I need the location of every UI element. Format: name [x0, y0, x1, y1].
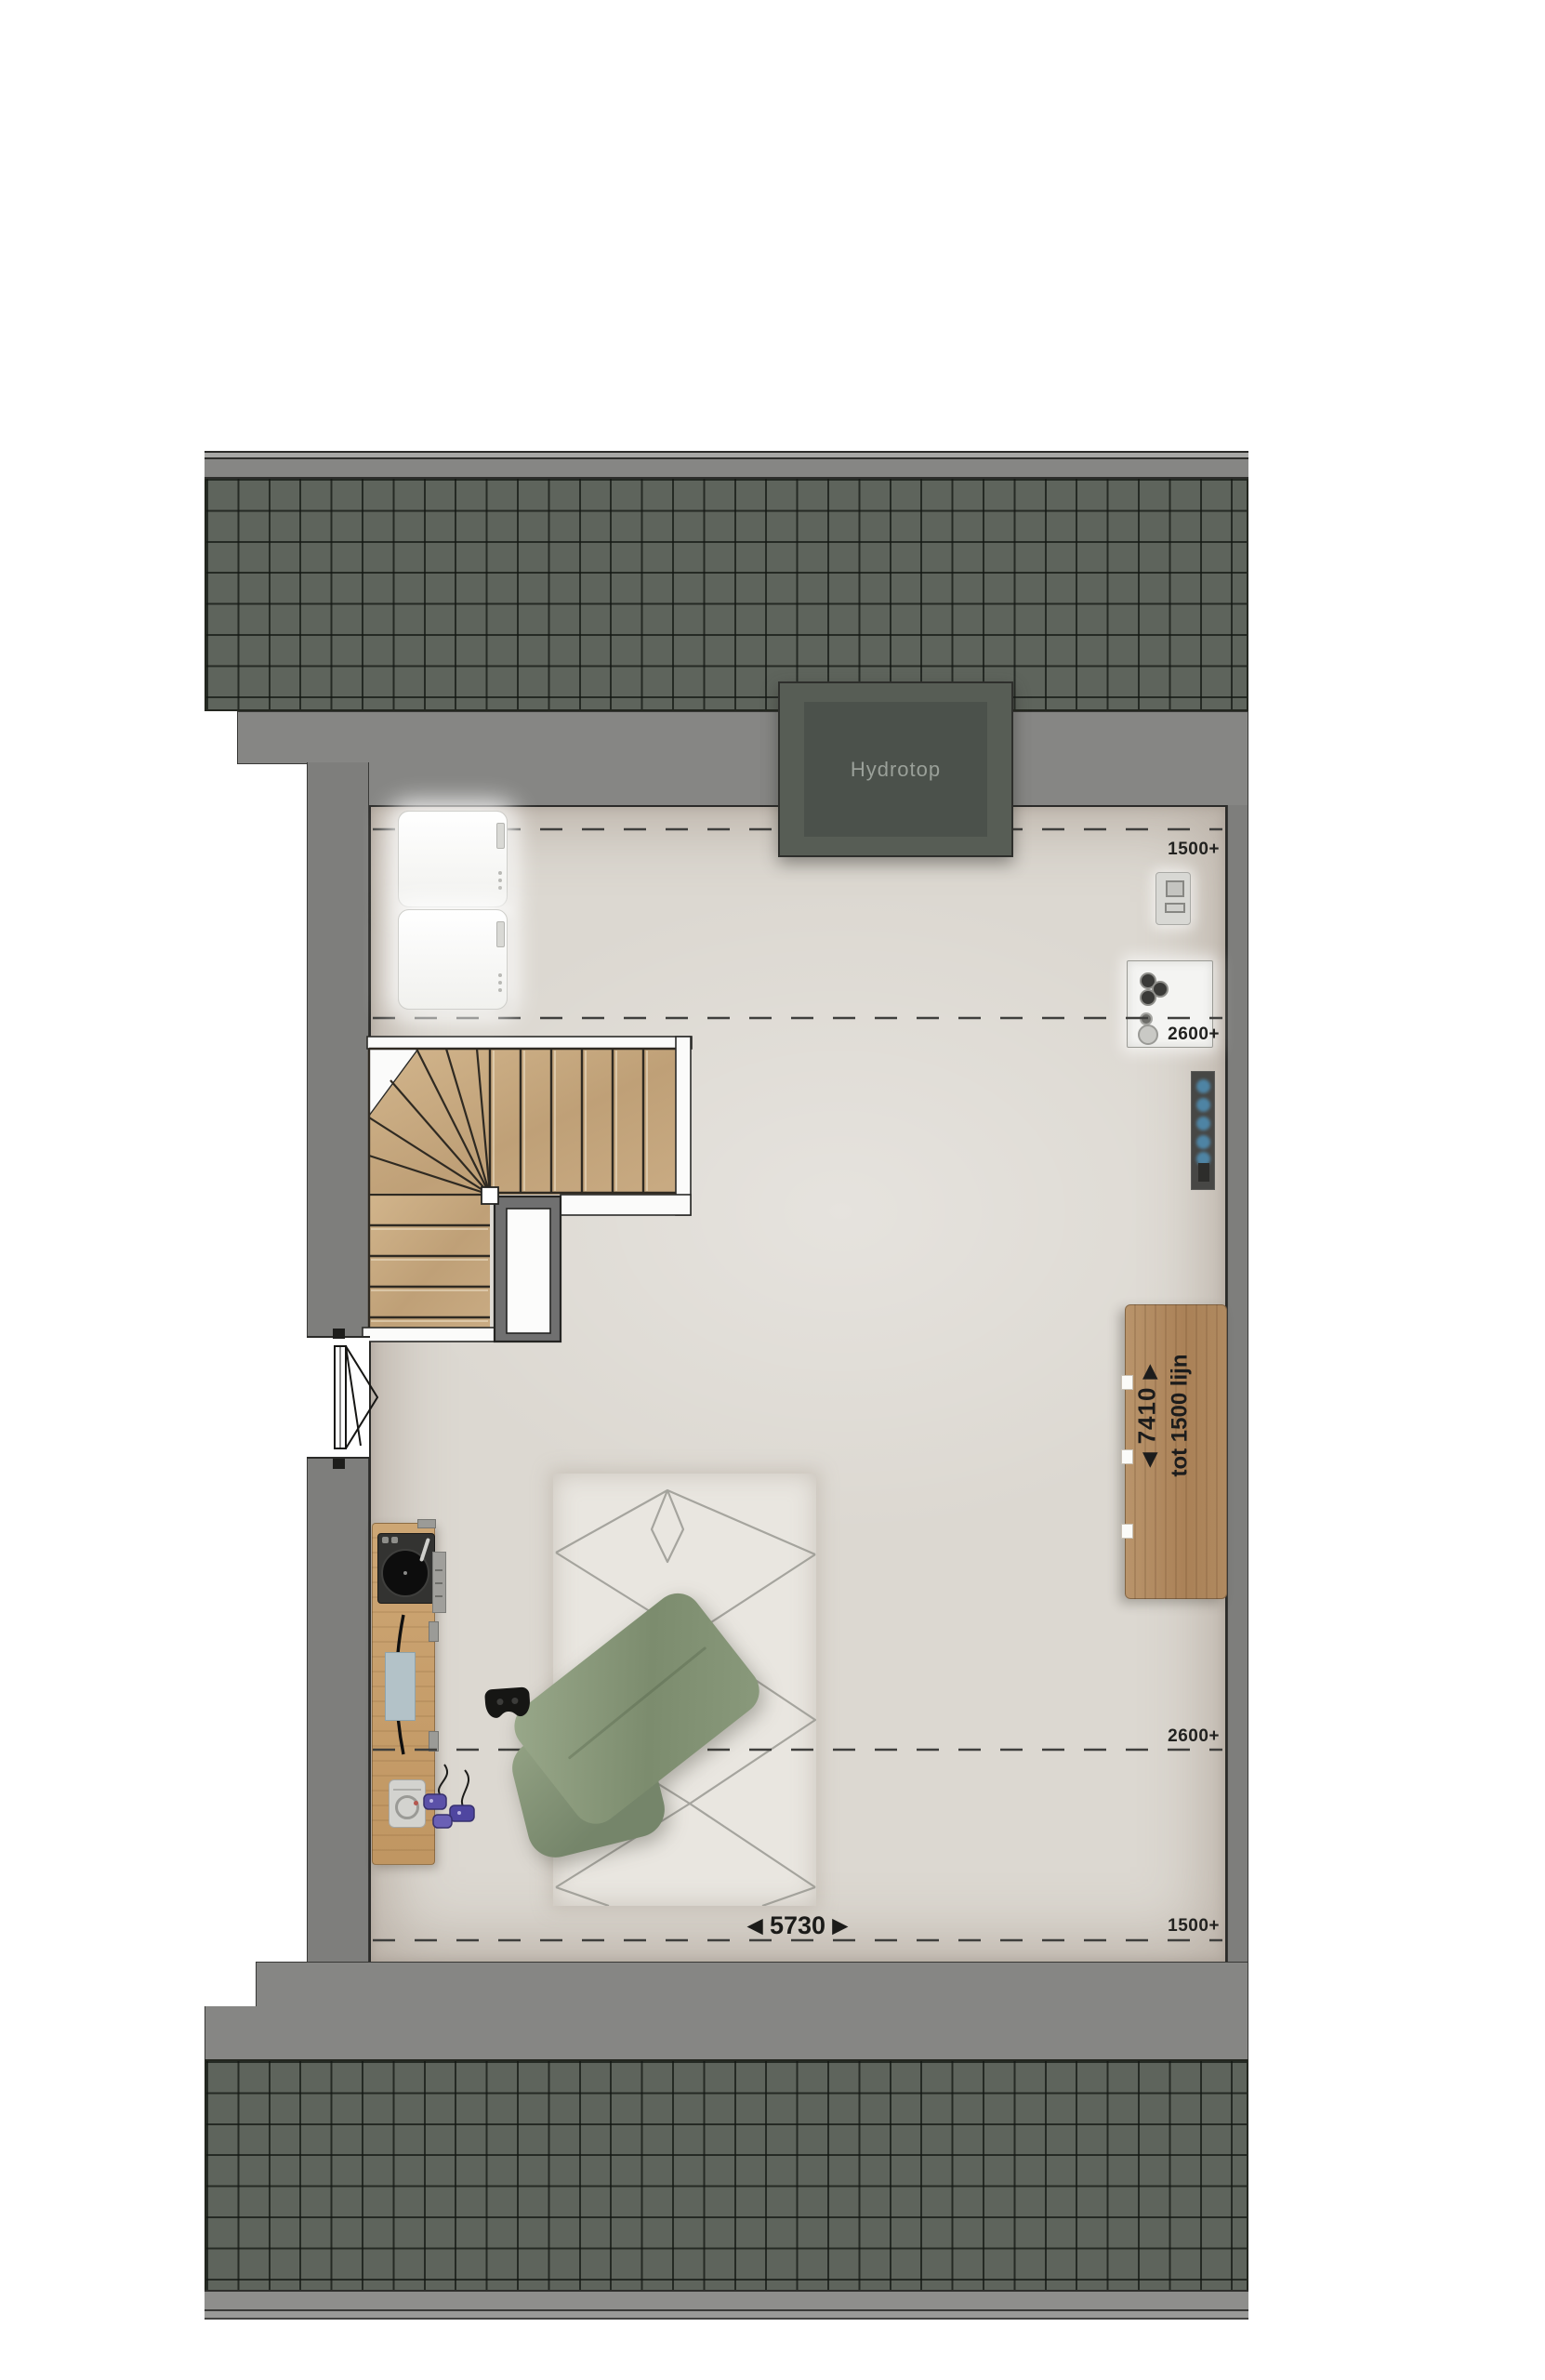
dim-label-1500-bottom: 1500+	[1136, 1916, 1220, 1937]
dim-label-width: ◀ 5730 ▶	[705, 1911, 891, 1940]
roof-tiles-top	[205, 479, 1248, 711]
ventilation-unit	[1155, 872, 1191, 925]
turntable	[377, 1533, 435, 1604]
faucet-spout	[1140, 1012, 1153, 1025]
dim-label-2600-top: 2600+	[1136, 1025, 1220, 1045]
roof-tiles-bottom	[205, 2059, 1248, 2290]
washer-controls	[496, 921, 505, 947]
wall-left-lower	[307, 1458, 369, 1963]
bench-support	[1121, 1449, 1133, 1464]
hydrotop-unit: Hydrotop	[778, 681, 1013, 857]
hydrotop-panel: Hydrotop	[804, 702, 987, 837]
bench-support	[1121, 1524, 1133, 1539]
dim-label-1500-top: 1500+	[1136, 840, 1220, 860]
radiator-valve	[1198, 1163, 1209, 1182]
console-seam	[393, 1789, 421, 1791]
gamepad	[482, 1681, 534, 1724]
radiator	[1191, 1071, 1215, 1190]
wall-left-upper	[307, 762, 369, 1337]
sideboard-bracket	[429, 1731, 439, 1752]
washer-hinges	[498, 973, 502, 977]
faucet-knob	[1140, 989, 1156, 1006]
roof-ridge-top	[205, 451, 1248, 479]
sideboard-bracket-top	[417, 1519, 436, 1528]
radiator-dot	[1196, 1079, 1210, 1093]
turntable-knob	[382, 1537, 389, 1543]
floor-plan-canvas: Hydrotop 1500+ 2600+ 2600+ 1500+	[0, 0, 1545, 2380]
width-value: 5730	[770, 1911, 825, 1939]
wall-right	[1227, 805, 1248, 1963]
dim-label-2600-bottom: 2600+	[1136, 1726, 1220, 1747]
washer-hinges	[498, 871, 502, 875]
radiator-dot	[1196, 1117, 1210, 1130]
radiator-dot	[1196, 1135, 1210, 1149]
roof-eaves-bottom-inner	[256, 1962, 1248, 2008]
vent-slot	[1165, 903, 1185, 913]
hydrotop-label: Hydrotop	[851, 758, 941, 782]
floor-pillow	[519, 1644, 759, 1856]
knee-wall-note: tot 1500 lijn	[1168, 1354, 1194, 1476]
roof-gutter-bottom	[205, 2290, 1248, 2320]
length-value: 7410	[1133, 1386, 1161, 1444]
pillow-seam	[568, 1646, 707, 1760]
amplifier	[432, 1552, 446, 1613]
washing-machine	[398, 811, 508, 907]
tv-stand	[385, 1652, 416, 1721]
media-sideboard	[372, 1523, 435, 1865]
roof-eaves-bottom	[205, 2006, 1248, 2061]
arrow-right-icon: ▶	[833, 1915, 848, 1937]
console-button	[414, 1801, 418, 1805]
arrow-left-icon: ◀	[747, 1915, 762, 1937]
bench-support	[1121, 1375, 1133, 1390]
radiator-dot	[1196, 1098, 1210, 1112]
game-console	[389, 1779, 426, 1828]
sideboard-bracket	[429, 1621, 439, 1642]
roof-eaves-top	[237, 711, 1248, 764]
turntable-knob	[391, 1537, 398, 1543]
dormer-window-opening	[307, 1337, 369, 1458]
arrow-right-icon: ▶	[1140, 1363, 1160, 1378]
dryer	[398, 909, 508, 1010]
washer-controls	[496, 823, 505, 849]
vent-grille	[1166, 880, 1184, 897]
arrow-left-icon: ◀	[1140, 1451, 1160, 1466]
console-disc-lid	[395, 1795, 419, 1819]
